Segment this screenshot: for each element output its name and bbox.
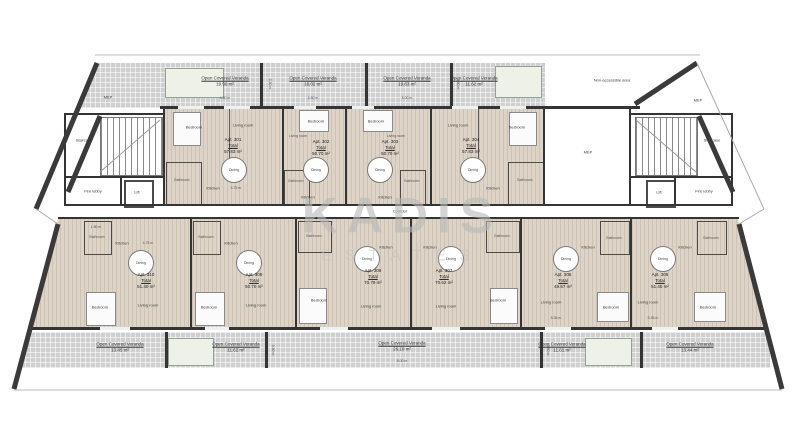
wall (631, 176, 733, 178)
room-label-kitchen: Kitchen (224, 241, 237, 246)
apt-301-label: Apt. 301 Total 57.83 m² (224, 137, 242, 155)
room-label-bathroom: Bathroom (306, 234, 321, 238)
planter (168, 338, 214, 366)
room-label-bedroom: Bedroom (490, 298, 506, 303)
bed (299, 288, 327, 324)
window (352, 106, 374, 109)
apt-303-label: Apt. 303 Total 50.70 m² (381, 139, 399, 157)
bottom-veranda-3-label: Open Covered Veranda 26.10 m² (378, 341, 425, 354)
dining-label: Dining (244, 261, 254, 265)
room-label-kitchen: Kitchen (581, 245, 594, 250)
dim-label: 3.80 m (456, 79, 460, 90)
dim-label: 8.00 m (397, 359, 408, 363)
veranda-area: 26.10 m² (393, 347, 411, 352)
room-label-bathroom: Bathroom (404, 179, 419, 183)
veranda-area: 16.02 m² (304, 82, 322, 87)
dining-label: Dining (561, 257, 571, 261)
room-label-living: Living room (448, 123, 469, 128)
window (545, 327, 571, 330)
apt-area: 70.79 m² (364, 280, 382, 286)
dining-label: Dining (468, 168, 478, 172)
wall (674, 178, 676, 204)
wall (64, 176, 165, 178)
wall (120, 178, 122, 204)
apt-309-label: Apt. 309 Total 50.70 m² (245, 272, 263, 290)
room-label-living: Living room (138, 303, 159, 308)
apt-307-label: Apt. 307 Total 70.62 m² (435, 268, 453, 286)
apt-308-label: Apt. 308 Total 70.79 m² (364, 268, 382, 286)
apt-area: 70.62 m² (435, 280, 453, 286)
apt-306-label: Apt. 306 Total 49.57 m² (554, 272, 572, 290)
dining-label: Dining (446, 257, 456, 261)
unit-divider (630, 219, 632, 327)
unit-divider (410, 219, 412, 327)
room-label-bedroom: Bedroom (700, 305, 716, 310)
room-label-bathroom: Bathroom (174, 178, 189, 182)
planter (585, 338, 632, 366)
wall (731, 113, 733, 205)
apt-area: 50.70 m² (312, 151, 330, 157)
veranda-area: 19.90 m² (216, 82, 234, 87)
dim-label: 8.00 m (402, 96, 413, 100)
wall (64, 113, 66, 205)
veranda-divider (265, 332, 268, 368)
planter (495, 66, 542, 98)
dining-table: Dining (553, 246, 579, 272)
veranda-area: 13.45 m² (111, 348, 129, 353)
veranda-divider (365, 63, 368, 106)
window (652, 327, 678, 330)
bathroom (400, 170, 426, 206)
apt-area: 49.57 m² (554, 284, 572, 290)
dining-table: Dining (303, 157, 329, 183)
room-label-kitchen: Kitchen (379, 245, 392, 250)
room-label-kitchen: Kitchen (115, 241, 128, 246)
lift-right-label: Lift (656, 190, 661, 195)
veranda-area: 11.62 m² (465, 82, 482, 87)
room-label-bedroom: Bedroom (311, 298, 327, 303)
room-label-living: Living room (638, 300, 659, 305)
bottom-veranda-2-label: Open Covered Veranda 11.62 m² (212, 342, 259, 355)
dim-label: 1.80 m (91, 225, 102, 229)
dim-label: 4.75 m (143, 241, 154, 245)
veranda-area: 19.63 m² (398, 82, 416, 87)
room-label-living: Living room (289, 134, 307, 138)
unit-divider (190, 219, 192, 327)
window (294, 106, 316, 109)
unit-divider (520, 219, 522, 327)
apt-305-label: Apt. 305 Total 51.40 m² (651, 272, 669, 290)
apt-310-label: Apt. 310 Total 51.40 m² (137, 272, 155, 290)
room-label-living: Living room (361, 304, 382, 309)
mep-room-right (547, 109, 631, 205)
mep-right-label: MEP (694, 98, 703, 103)
fire-lobby-left-label: Fire lobby (84, 189, 102, 194)
room-label-living: Living room (387, 134, 405, 138)
apt-302-label: Apt. 302 Total 50.70 m² (312, 139, 330, 157)
veranda-divider (640, 332, 643, 368)
fire-lobby-right-label: Fire lobby (695, 189, 713, 194)
room-label-kitchen: Kitchen (486, 186, 499, 191)
veranda-divider (165, 332, 168, 368)
wall (58, 217, 739, 219)
apt-area: 57.83 m² (224, 149, 242, 155)
room-label-kitchen: Kitchen (678, 245, 691, 250)
dim-label: 3.80 m (268, 79, 272, 90)
room-label-bedroom: Bedroom (603, 305, 619, 310)
staircase-left-label: Staircase (76, 138, 93, 143)
dining-label: Dining (229, 168, 239, 172)
staircase-right-label: Staircase (704, 138, 721, 143)
dining-table: Dining (650, 246, 676, 272)
staircase-left (100, 117, 163, 176)
apt-area: 51.40 m² (137, 284, 155, 290)
bathroom (166, 162, 202, 206)
non-accessible-label: Non-accessible area (594, 78, 630, 83)
top-veranda-2-label: Open Covered Veranda 16.02 m² (289, 76, 336, 89)
window (205, 327, 229, 330)
room-label-living: Living room (233, 123, 254, 128)
room-label-bathroom: Bathroom (494, 234, 509, 238)
window (178, 106, 204, 109)
room-label-kitchen: Kitchen (378, 195, 391, 200)
room-label-kitchen: Kitchen (206, 186, 219, 191)
wall (629, 106, 631, 205)
room-label-bedroom: Bedroom (509, 125, 525, 130)
dining-label: Dining (136, 261, 146, 265)
room-label-bathroom: Bathroom (198, 235, 213, 239)
bottom-veranda-5-label: Open Covered Veranda 13.44 m² (666, 342, 713, 355)
lift-left-label: Lift (134, 190, 139, 195)
dim-label: 4.75 m (231, 186, 242, 190)
veranda-area: 11.62 m² (227, 348, 244, 353)
room-label-bedroom: Bedroom (308, 119, 324, 124)
apt-area: 51.40 m² (651, 284, 669, 290)
wall (64, 113, 165, 115)
dining-table: Dining (367, 157, 393, 183)
window (500, 106, 526, 109)
dining-label: Dining (362, 257, 372, 261)
unit-divider (295, 219, 297, 327)
room-label-living: Living room (436, 304, 457, 309)
room-label-bathroom: Bathroom (517, 178, 532, 182)
room-label-bedroom: Bedroom (92, 305, 108, 310)
dining-label: Dining (658, 257, 668, 261)
room-label-bedroom: Bedroom (186, 125, 202, 130)
apt-area: 50.70 m² (381, 151, 399, 157)
bed (490, 288, 518, 324)
room-label-bedroom: Bedroom (201, 305, 217, 310)
room-label-kitchen: Kitchen (423, 245, 436, 250)
bathroom (508, 162, 544, 206)
unit-divider (345, 108, 347, 204)
veranda-divider (260, 63, 263, 106)
dim-label: 4.50 m (220, 96, 231, 100)
room-label-bathroom: Bathroom (89, 235, 104, 239)
room-label-bedroom: Bedroom (368, 119, 384, 124)
apt-area: 50.70 m² (245, 284, 263, 290)
wall (163, 106, 165, 205)
dining-label: Dining (375, 168, 385, 172)
room-label-living: Living room (246, 303, 267, 308)
dim-label: 5.35 m (648, 316, 659, 320)
window (224, 106, 250, 109)
top-veranda-1-label: Open Covered Veranda 19.90 m² (201, 76, 248, 89)
veranda-area: 13.44 m² (681, 348, 699, 353)
mep-left-label: MEP (104, 95, 113, 100)
top-veranda-3-label: Open Covered Veranda 19.63 m² (383, 76, 430, 89)
dim-label: 4.50 m (308, 96, 319, 100)
dining-table: Dining (221, 157, 247, 183)
corridor-label: Corridor (393, 209, 407, 214)
dim-label: 5.35 m (551, 316, 562, 320)
room-label-bathroom: Bathroom (288, 179, 303, 183)
veranda-area: 11.61 m² (553, 348, 570, 353)
dining-table: Dining (460, 157, 486, 183)
floor-plan-canvas: Staircase Staircase Fire lobby Fire lobb… (0, 0, 796, 448)
dining-label: Dining (311, 168, 321, 172)
apt-304-label: Apt. 304 Total 57.83 m² (462, 137, 480, 155)
staircase-right (635, 117, 698, 176)
wall (631, 113, 733, 115)
unit-divider (430, 108, 432, 204)
unit-divider (282, 108, 284, 204)
wall (543, 106, 545, 205)
mep-room-label: MEP (584, 150, 593, 155)
room-label-bathroom: Bathroom (703, 236, 718, 240)
room-label-bathroom: Bathroom (606, 236, 621, 240)
bottom-veranda-1-label: Open Covered Veranda 13.45 m² (96, 342, 143, 355)
dim-label: 3.80 m (546, 345, 550, 356)
dim-label: 3.80 m (271, 345, 275, 356)
apt-area: 57.83 m² (462, 149, 480, 155)
window (100, 327, 130, 330)
window (452, 106, 478, 109)
window (432, 327, 460, 330)
room-label-kitchen: Kitchen (301, 195, 314, 200)
window (320, 327, 348, 330)
room-label-living: Living room (541, 300, 562, 305)
